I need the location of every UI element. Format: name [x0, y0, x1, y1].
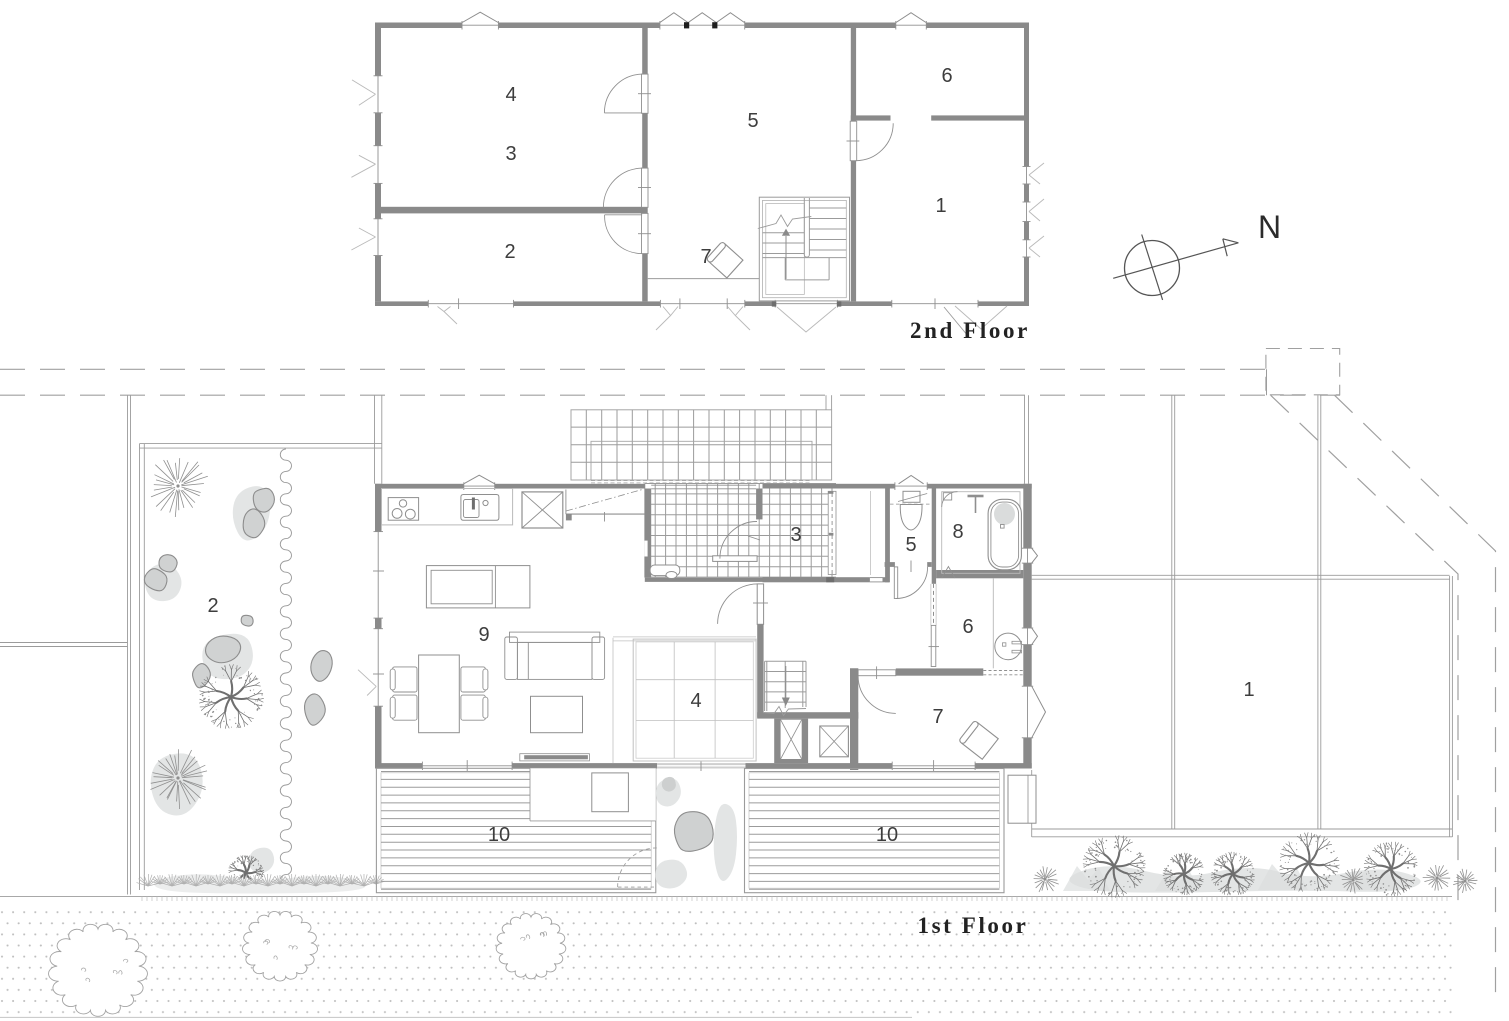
svg-text:9: 9 [478, 624, 489, 646]
svg-text:6: 6 [962, 616, 973, 638]
svg-text:2nd Floor: 2nd Floor [910, 318, 1030, 343]
svg-text:3: 3 [790, 524, 801, 546]
svg-text:8: 8 [952, 521, 963, 543]
svg-text:5: 5 [905, 534, 916, 556]
svg-text:7: 7 [700, 246, 711, 268]
svg-text:3: 3 [505, 143, 516, 165]
svg-text:4: 4 [505, 84, 516, 106]
svg-text:10: 10 [876, 824, 898, 846]
svg-text:7: 7 [932, 706, 943, 728]
svg-text:N: N [1258, 209, 1281, 245]
svg-text:2: 2 [504, 241, 515, 263]
svg-text:10: 10 [488, 824, 510, 846]
svg-text:1: 1 [1243, 679, 1254, 701]
svg-text:2: 2 [207, 595, 218, 617]
svg-text:6: 6 [941, 65, 952, 87]
svg-text:4: 4 [690, 690, 701, 712]
svg-text:5: 5 [747, 110, 758, 132]
svg-text:1: 1 [935, 195, 946, 217]
svg-text:1st Floor: 1st Floor [918, 913, 1029, 938]
